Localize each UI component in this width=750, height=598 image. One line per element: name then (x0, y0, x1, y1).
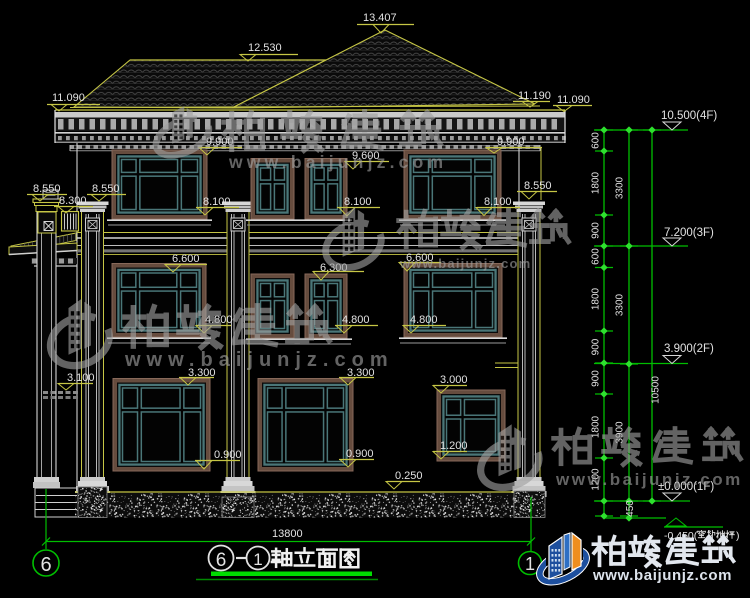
svg-text:11.090: 11.090 (52, 92, 85, 104)
svg-text:0.900: 0.900 (214, 449, 242, 461)
svg-text:3.000: 3.000 (440, 374, 468, 386)
svg-text:12.530: 12.530 (248, 42, 282, 54)
svg-text:www.baijunjz.com: www.baijunjz.com (555, 470, 743, 489)
svg-text:13.407: 13.407 (363, 12, 397, 24)
svg-text:4.800: 4.800 (410, 314, 438, 326)
svg-text:3.100: 3.100 (67, 372, 95, 384)
svg-text:8.550: 8.550 (92, 183, 120, 195)
svg-text:1800: 1800 (591, 415, 602, 438)
svg-text:1800: 1800 (591, 171, 602, 194)
svg-text:8.100: 8.100 (484, 196, 512, 208)
svg-text:1: 1 (253, 550, 262, 569)
svg-text:www.baijunjz.com: www.baijunjz.com (592, 567, 732, 584)
svg-text:www.baijunjz.com: www.baijunjz.com (399, 256, 531, 271)
svg-text:11.090: 11.090 (557, 94, 590, 106)
svg-text:8.300: 8.300 (59, 195, 87, 207)
svg-text:8.100: 8.100 (203, 196, 231, 208)
svg-text:9.900: 9.900 (497, 136, 525, 148)
svg-text:10500: 10500 (651, 376, 662, 404)
svg-text:13800: 13800 (272, 528, 303, 540)
svg-text:600: 600 (591, 248, 602, 265)
svg-text:3.900(2F): 3.900(2F) (664, 343, 714, 355)
svg-text:3300: 3300 (615, 176, 626, 199)
svg-text:900: 900 (591, 370, 602, 387)
svg-text:4.800: 4.800 (342, 314, 370, 326)
svg-text:1.200: 1.200 (440, 440, 468, 452)
svg-text:10.500(4F): 10.500(4F) (661, 110, 717, 122)
svg-text:): ) (736, 530, 740, 542)
svg-text:900: 900 (591, 222, 602, 239)
svg-text:11.190: 11.190 (518, 90, 551, 102)
svg-text:8.550: 8.550 (524, 180, 552, 192)
svg-text:www.baijunjz.com: www.baijunjz.com (228, 152, 447, 172)
svg-text:1: 1 (525, 554, 535, 574)
svg-text:www.baijunjz.com: www.baijunjz.com (124, 349, 394, 371)
svg-text:6: 6 (40, 554, 51, 576)
svg-text:7.200(3F): 7.200(3F) (664, 227, 714, 239)
svg-text:6: 6 (216, 550, 227, 571)
svg-text:3300: 3300 (615, 293, 626, 316)
svg-text:900: 900 (591, 338, 602, 355)
svg-text:1800: 1800 (591, 287, 602, 310)
svg-text:8.100: 8.100 (344, 196, 372, 208)
svg-text:450: 450 (625, 500, 636, 517)
svg-text:8.550: 8.550 (33, 183, 61, 195)
svg-text:0.900: 0.900 (346, 448, 374, 460)
svg-text:600: 600 (591, 132, 602, 149)
svg-text:0.250: 0.250 (395, 470, 423, 482)
svg-text:6.600: 6.600 (172, 253, 200, 265)
